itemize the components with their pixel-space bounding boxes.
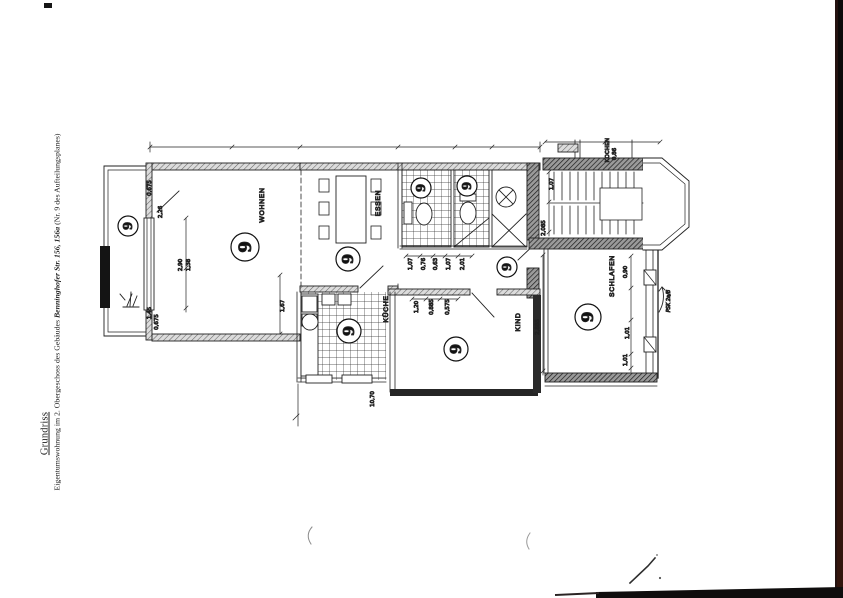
cistern — [404, 202, 412, 224]
dim-label: 0,675 — [154, 314, 160, 330]
dim-label: 1,20 — [414, 300, 420, 313]
window — [306, 375, 332, 383]
dim-label: 2,085 — [541, 220, 547, 236]
unit-number-badge: 9 — [575, 304, 601, 330]
room-wohnen: WOHNEN — [144, 163, 301, 341]
unit-number-badge: 9 — [336, 247, 360, 271]
unit-number: 9 — [340, 326, 358, 336]
unit-number-badge: 9 — [118, 216, 138, 236]
unit-number-badge: 9 — [497, 257, 517, 277]
dim-label: 0,63 — [433, 257, 439, 270]
dim-label: 1,07 — [446, 257, 452, 270]
dimension-labels: 0,675 2,26 2,90 1,38 1,45 0,675 1,67 1,0… — [147, 147, 631, 406]
unit-number: 9 — [500, 263, 514, 271]
kitchen-sink — [302, 314, 318, 330]
dim-label: 1,07 — [408, 257, 414, 270]
dining-table — [336, 176, 366, 243]
room-label-kueche: KÜCHE — [382, 295, 390, 322]
dim-label: 1,01 — [623, 354, 629, 366]
window — [342, 375, 372, 383]
dim-label: 1,07 — [549, 177, 555, 190]
floorplan-drawing: WOHNEN ESSEN — [0, 0, 843, 598]
dim-label: 0,675 — [147, 180, 153, 196]
handwritten-note: PSK 2a/B — [659, 287, 672, 312]
dim-label: 0,575 — [445, 299, 451, 315]
scanned-page: Grundriss Eigentumswohnung im 2. Oberges… — [0, 0, 843, 598]
unit-number: 9 — [578, 311, 597, 322]
staircase — [543, 158, 689, 250]
dim-label: 1,67 — [280, 299, 286, 312]
stray-mark — [308, 527, 312, 544]
dim-label: 0,885 — [429, 299, 435, 315]
balcony-window — [144, 218, 154, 310]
toilet — [416, 203, 432, 225]
shaft — [492, 170, 527, 247]
dim-label: 1,45 — [147, 306, 153, 319]
unit-number-badge: 9 — [444, 337, 468, 361]
plant-symbol — [120, 292, 139, 307]
room-label-wohnen: WOHNEN — [259, 187, 266, 222]
pen-mark — [630, 554, 661, 583]
unit-number: 9 — [460, 182, 474, 190]
scan-speck — [44, 3, 52, 8]
dim-label: 2,26 — [158, 205, 164, 218]
unit-number: 9 — [414, 184, 428, 192]
dim-label: 2,885 — [535, 319, 541, 335]
unit-number: 9 — [121, 222, 135, 230]
note-text: PSK 2a/B — [666, 289, 672, 312]
dim-label: 2,90 — [178, 258, 184, 271]
unit-number-badge: 9 — [411, 178, 431, 198]
toilet — [460, 202, 476, 224]
unit-number-badge: 9 — [337, 319, 361, 343]
crossed-circle-symbol — [496, 187, 516, 207]
room-label-essen: ESSEN — [375, 190, 382, 217]
unit-number: 9 — [447, 344, 465, 354]
unit-number: 9 — [339, 254, 357, 264]
exterior-wall — [390, 389, 538, 396]
dim-label: 0,86 — [612, 147, 618, 160]
room-label-kochen: KOCHEN — [605, 138, 611, 163]
unit-number: 9 — [236, 241, 256, 253]
stray-mark — [527, 533, 530, 549]
balcony-divider — [100, 246, 110, 308]
dim-label: 1,38 — [186, 258, 192, 271]
dim-label: 1,01 — [625, 327, 631, 339]
dim-label: 0,76 — [421, 257, 427, 270]
unit-number-badge: 9 — [231, 233, 259, 261]
door-swing — [360, 266, 383, 288]
scan-edge-bottom — [596, 587, 843, 598]
party-wall — [533, 295, 541, 393]
unit-number-badge: 9 — [457, 176, 477, 196]
balcony — [100, 166, 150, 336]
exterior-wall — [545, 373, 657, 382]
dim-label: 0,90 — [623, 265, 629, 278]
dim-label: 10,70 — [370, 391, 376, 407]
dim-label: 2,01 — [460, 258, 466, 270]
room-label-schlafen: SCHLAFEN — [609, 255, 616, 297]
room-label-kind: KIND — [515, 312, 522, 331]
stairwell-eye — [600, 188, 642, 220]
door-swing — [472, 293, 494, 317]
